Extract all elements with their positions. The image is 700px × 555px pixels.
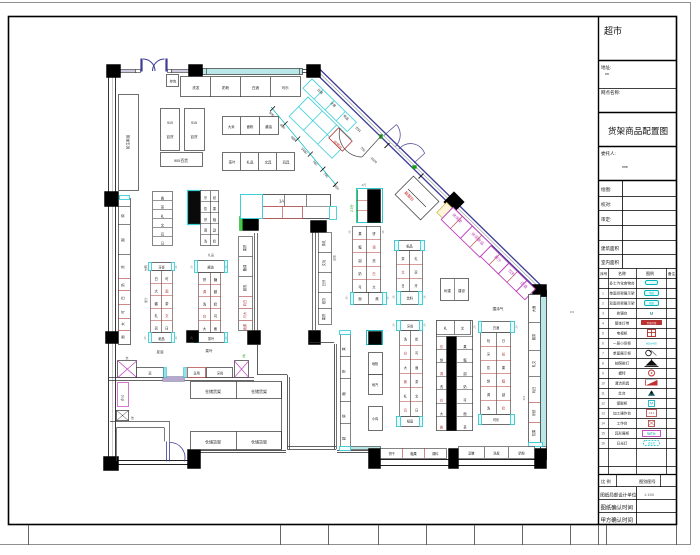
- svg-text:礼文: 礼文: [531, 360, 536, 367]
- svg-text:单面: 单面: [649, 291, 654, 295]
- svg-text:存包: 存包: [170, 79, 177, 84]
- svg-text:文: 文: [125, 355, 128, 360]
- svg-text:地汽: 地汽: [372, 382, 379, 387]
- svg-text:模特: 模特: [618, 371, 626, 376]
- svg-text:日: 日: [401, 284, 404, 288]
- svg-text:礼: 礼: [155, 313, 159, 318]
- svg-text:茶叶: 茶叶: [229, 160, 236, 165]
- svg-text:6: 6: [602, 341, 604, 345]
- svg-text:酱: 酱: [161, 196, 164, 201]
- svg-text:M: M: [650, 401, 653, 406]
- svg-text:1.5.1: 1.5.1: [649, 411, 655, 415]
- svg-text:日光灯: 日光灯: [648, 441, 656, 445]
- svg-text:牙膏: 牙膏: [407, 323, 413, 328]
- svg-text:日: 日: [502, 339, 505, 343]
- svg-text:调: 调: [440, 371, 443, 376]
- svg-text:双面货架展示架: 双面货架展示架: [609, 301, 635, 306]
- svg-text:灶台: 灶台: [618, 391, 626, 396]
- svg-text:超市: 超市: [604, 25, 622, 36]
- svg-text:酱: 酱: [404, 379, 407, 384]
- svg-text:奶白: 奶白: [242, 300, 247, 306]
- svg-text:日光灯: 日光灯: [617, 441, 628, 446]
- svg-text:洗发: 洗发: [493, 451, 500, 456]
- svg-text:保鲜柜: 保鲜柜: [617, 401, 628, 406]
- svg-text:足浴: 足浴: [156, 349, 164, 354]
- svg-text:果饼: 果饼: [321, 313, 326, 320]
- svg-text:建设: 建设: [458, 288, 465, 293]
- svg-text:2: 2: [602, 301, 604, 305]
- svg-text:围涂气: 围涂气: [493, 306, 504, 311]
- svg-text:百货: 百货: [166, 134, 174, 139]
- svg-text:5: 5: [602, 331, 604, 335]
- svg-text:备注: 备注: [668, 271, 676, 276]
- svg-text:白: 白: [155, 276, 158, 281]
- svg-text:牙膏: 牙膏: [158, 265, 164, 270]
- svg-text:树重: 树重: [444, 288, 451, 293]
- svg-text:...: ...: [651, 282, 653, 285]
- svg-text:拍照射灯: 拍照射灯: [615, 361, 630, 366]
- svg-text:民生用品: 民生用品: [125, 134, 130, 149]
- svg-text:副: 副: [213, 228, 216, 233]
- svg-text:委托人:: 委托人:: [601, 150, 616, 156]
- svg-text:7: 7: [602, 351, 604, 355]
- svg-text:酱: 酱: [440, 424, 443, 429]
- svg-text:牙: 牙: [414, 284, 417, 288]
- svg-text:菜叶: 菜叶: [205, 348, 213, 353]
- svg-text:面: 面: [463, 412, 466, 416]
- svg-text:比 例: 比 例: [601, 478, 611, 485]
- svg-text:饮果: 饮果: [531, 429, 536, 436]
- svg-text:1A: 1A: [279, 199, 284, 204]
- svg-text:调: 调: [487, 392, 490, 397]
- svg-text:1: 1: [602, 291, 604, 295]
- svg-text:酱油: 酱油: [265, 124, 272, 129]
- svg-text:日: 日: [165, 327, 168, 331]
- svg-text:纸品: 纸品: [406, 244, 412, 249]
- svg-text:白: 白: [440, 398, 443, 403]
- svg-text:双面: 双面: [649, 301, 654, 305]
- svg-text:糖调: 糖调: [242, 265, 247, 271]
- svg-text:16: 16: [601, 441, 605, 445]
- svg-text:奶: 奶: [463, 384, 466, 389]
- svg-text:**: **: [605, 73, 609, 79]
- svg-text:副食: 副食: [468, 451, 475, 456]
- svg-text:奶粉: 奶粉: [222, 85, 230, 90]
- svg-text:建筑面积: 建筑面积: [601, 245, 619, 252]
- svg-text:副: 副: [502, 392, 505, 397]
- svg-text:图例: 图例: [646, 270, 654, 276]
- svg-text:910: 910: [167, 121, 173, 125]
- svg-text:图别图号: 图别图号: [639, 478, 656, 485]
- svg-text:审定:: 审定:: [601, 216, 611, 223]
- svg-text:8: 8: [602, 361, 604, 365]
- svg-text:文具: 文具: [265, 160, 272, 165]
- svg-text:1:150: 1:150: [644, 492, 655, 497]
- svg-text:915: 915: [191, 121, 197, 125]
- svg-text:面粉: 面粉: [247, 124, 254, 129]
- svg-text:日用: 日用: [193, 372, 199, 376]
- svg-text:2斤: 2斤: [362, 182, 367, 187]
- svg-text:糖果: 糖果: [333, 255, 337, 261]
- svg-text:饼干: 饼干: [389, 451, 396, 456]
- svg-text:茶礼: 茶礼: [321, 239, 326, 246]
- svg-text:地柜: 地柜: [372, 361, 379, 366]
- svg-text:905百货: 905百货: [174, 158, 188, 163]
- svg-text:4: 4: [602, 321, 604, 325]
- svg-text:办公: 办公: [120, 394, 125, 401]
- svg-text:白: 白: [120, 296, 125, 299]
- svg-text:奶: 奶: [213, 239, 216, 244]
- svg-text:绘图:: 绘图:: [601, 186, 611, 193]
- svg-text:白酒: 白酒: [252, 85, 260, 90]
- svg-text:仓储货架: 仓储货架: [251, 439, 267, 445]
- svg-text:副: 副: [358, 258, 361, 263]
- svg-text:甲方确认时间: 甲方确认时间: [601, 516, 633, 524]
- svg-text:酱: 酱: [375, 296, 378, 301]
- svg-text:收银台: 收银台: [617, 311, 628, 316]
- svg-text:可乐: 可乐: [493, 417, 500, 422]
- svg-text:15: 15: [601, 431, 605, 435]
- svg-text:仓储货架: 仓储货架: [251, 388, 267, 394]
- svg-text:301: 301: [522, 395, 526, 400]
- svg-text:日: 日: [415, 409, 418, 413]
- svg-text:仓储货架: 仓储货架: [205, 388, 221, 394]
- svg-text:牙: 牙: [204, 196, 207, 200]
- svg-text:礼品: 礼品: [247, 160, 254, 165]
- svg-text:白: 白: [203, 314, 206, 319]
- svg-text:白酒: 白酒: [493, 325, 500, 330]
- svg-text:调: 调: [204, 228, 207, 233]
- svg-text:奶: 奶: [358, 271, 361, 276]
- svg-text:灯带灯带: 灯带灯带: [647, 321, 657, 325]
- svg-text:奶粉: 奶粉: [518, 451, 525, 456]
- svg-text:玩日: 玩日: [532, 387, 536, 394]
- svg-text:大面: 大面: [531, 305, 536, 312]
- svg-text:调: 调: [372, 244, 375, 249]
- svg-text:3: 3: [602, 311, 604, 315]
- svg-text:副洗: 副洗: [242, 284, 247, 291]
- svg-text:玩: 玩: [155, 327, 159, 331]
- svg-text:纸品: 纸品: [158, 336, 164, 341]
- svg-text:14: 14: [601, 421, 605, 425]
- svg-text:百货: 百货: [190, 134, 198, 139]
- svg-text:M: M: [650, 311, 654, 316]
- svg-text:2.5斤: 2.5斤: [349, 204, 354, 212]
- svg-text:仓储货架: 仓储货架: [205, 439, 221, 445]
- svg-text:网点名称:: 网点名称:: [601, 89, 620, 96]
- svg-text:白: 白: [372, 271, 375, 276]
- svg-text:大米: 大米: [228, 124, 235, 129]
- svg-text:电视柜: 电视柜: [617, 331, 628, 336]
- svg-text:牙纸: 牙纸: [531, 409, 536, 416]
- svg-text:果汁: 果汁: [144, 297, 148, 303]
- svg-text:纸品: 纸品: [407, 419, 413, 424]
- svg-text:日: 日: [161, 242, 164, 246]
- svg-text:奶: 奶: [415, 337, 418, 342]
- svg-text:货架商品配置图: 货架商品配置图: [608, 125, 668, 136]
- svg-text:纸: 纸: [242, 353, 245, 358]
- svg-text:13: 13: [601, 411, 605, 415]
- svg-text:果饼: 果饼: [242, 244, 247, 251]
- svg-text:可大: 可大: [242, 311, 247, 318]
- svg-text:大: 大: [155, 288, 159, 293]
- svg-text:9: 9: [602, 371, 604, 375]
- svg-text:校对:: 校对:: [601, 201, 611, 208]
- svg-text:日牙: 日牙: [322, 280, 326, 286]
- svg-text:序号: 序号: [600, 271, 608, 276]
- svg-text:面: 面: [358, 297, 361, 301]
- svg-text:酱茶: 酱茶: [531, 333, 536, 340]
- svg-text:牙: 牙: [487, 353, 490, 357]
- svg-text:牙膏: 牙膏: [217, 371, 223, 376]
- svg-text:***: ***: [622, 166, 628, 172]
- svg-text:调料: 调料: [432, 451, 439, 456]
- svg-text:单面货架展示架: 单面货架展示架: [609, 291, 635, 296]
- svg-text:266: 266: [570, 310, 575, 314]
- svg-text:面酱: 面酱: [242, 324, 247, 330]
- svg-text:饮料: 饮料: [407, 295, 414, 300]
- svg-text:玩具: 玩具: [283, 160, 290, 165]
- svg-text:可乐: 可乐: [282, 85, 290, 90]
- svg-text:小鸡: 小鸡: [372, 416, 378, 421]
- svg-text:10: 10: [601, 381, 605, 385]
- svg-text:饮: 饮: [131, 416, 134, 420]
- svg-text:名称: 名称: [618, 270, 626, 276]
- svg-text:酱油: 酱油: [207, 265, 213, 270]
- svg-text:酱: 酱: [155, 301, 159, 306]
- svg-text:白: 白: [404, 351, 407, 356]
- svg-text:面: 面: [415, 366, 418, 370]
- svg-text:奶: 奶: [502, 406, 505, 411]
- svg-text:图纸局部设计单位: 图纸局部设计单位: [600, 492, 636, 499]
- svg-text:图纸确认时间: 图纸确认时间: [601, 504, 633, 512]
- svg-text:室内面积: 室内面积: [601, 259, 619, 266]
- svg-text:地址:: 地址:: [601, 64, 611, 70]
- svg-text:12: 12: [601, 401, 605, 405]
- svg-text:纸饮: 纸饮: [321, 297, 326, 304]
- svg-text:文玩: 文玩: [321, 259, 326, 266]
- svg-text:加工操作台: 加工操作台: [613, 411, 631, 416]
- svg-text:礼品: 礼品: [208, 252, 214, 257]
- svg-text:操作台: 操作台: [647, 431, 656, 435]
- svg-text:异形展柜: 异形展柜: [615, 431, 630, 436]
- svg-text:清洁用具: 清洁用具: [615, 381, 630, 386]
- svg-text:600x400: 600x400: [646, 341, 657, 345]
- svg-text:多士汽化食物台: 多士汽化食物台: [609, 281, 635, 286]
- svg-text:一层小货柜: 一层小货柜: [613, 341, 631, 346]
- svg-text:11: 11: [601, 391, 605, 395]
- svg-text:洗发: 洗发: [192, 85, 200, 90]
- svg-text:单面展示柜: 单面展示柜: [613, 351, 631, 356]
- svg-text:糖果: 糖果: [410, 451, 417, 456]
- svg-text:茶叶: 茶叶: [208, 336, 215, 341]
- svg-text:工作台: 工作台: [617, 421, 628, 426]
- svg-text:副: 副: [463, 371, 466, 376]
- svg-text:整体灯带: 整体灯带: [615, 321, 630, 326]
